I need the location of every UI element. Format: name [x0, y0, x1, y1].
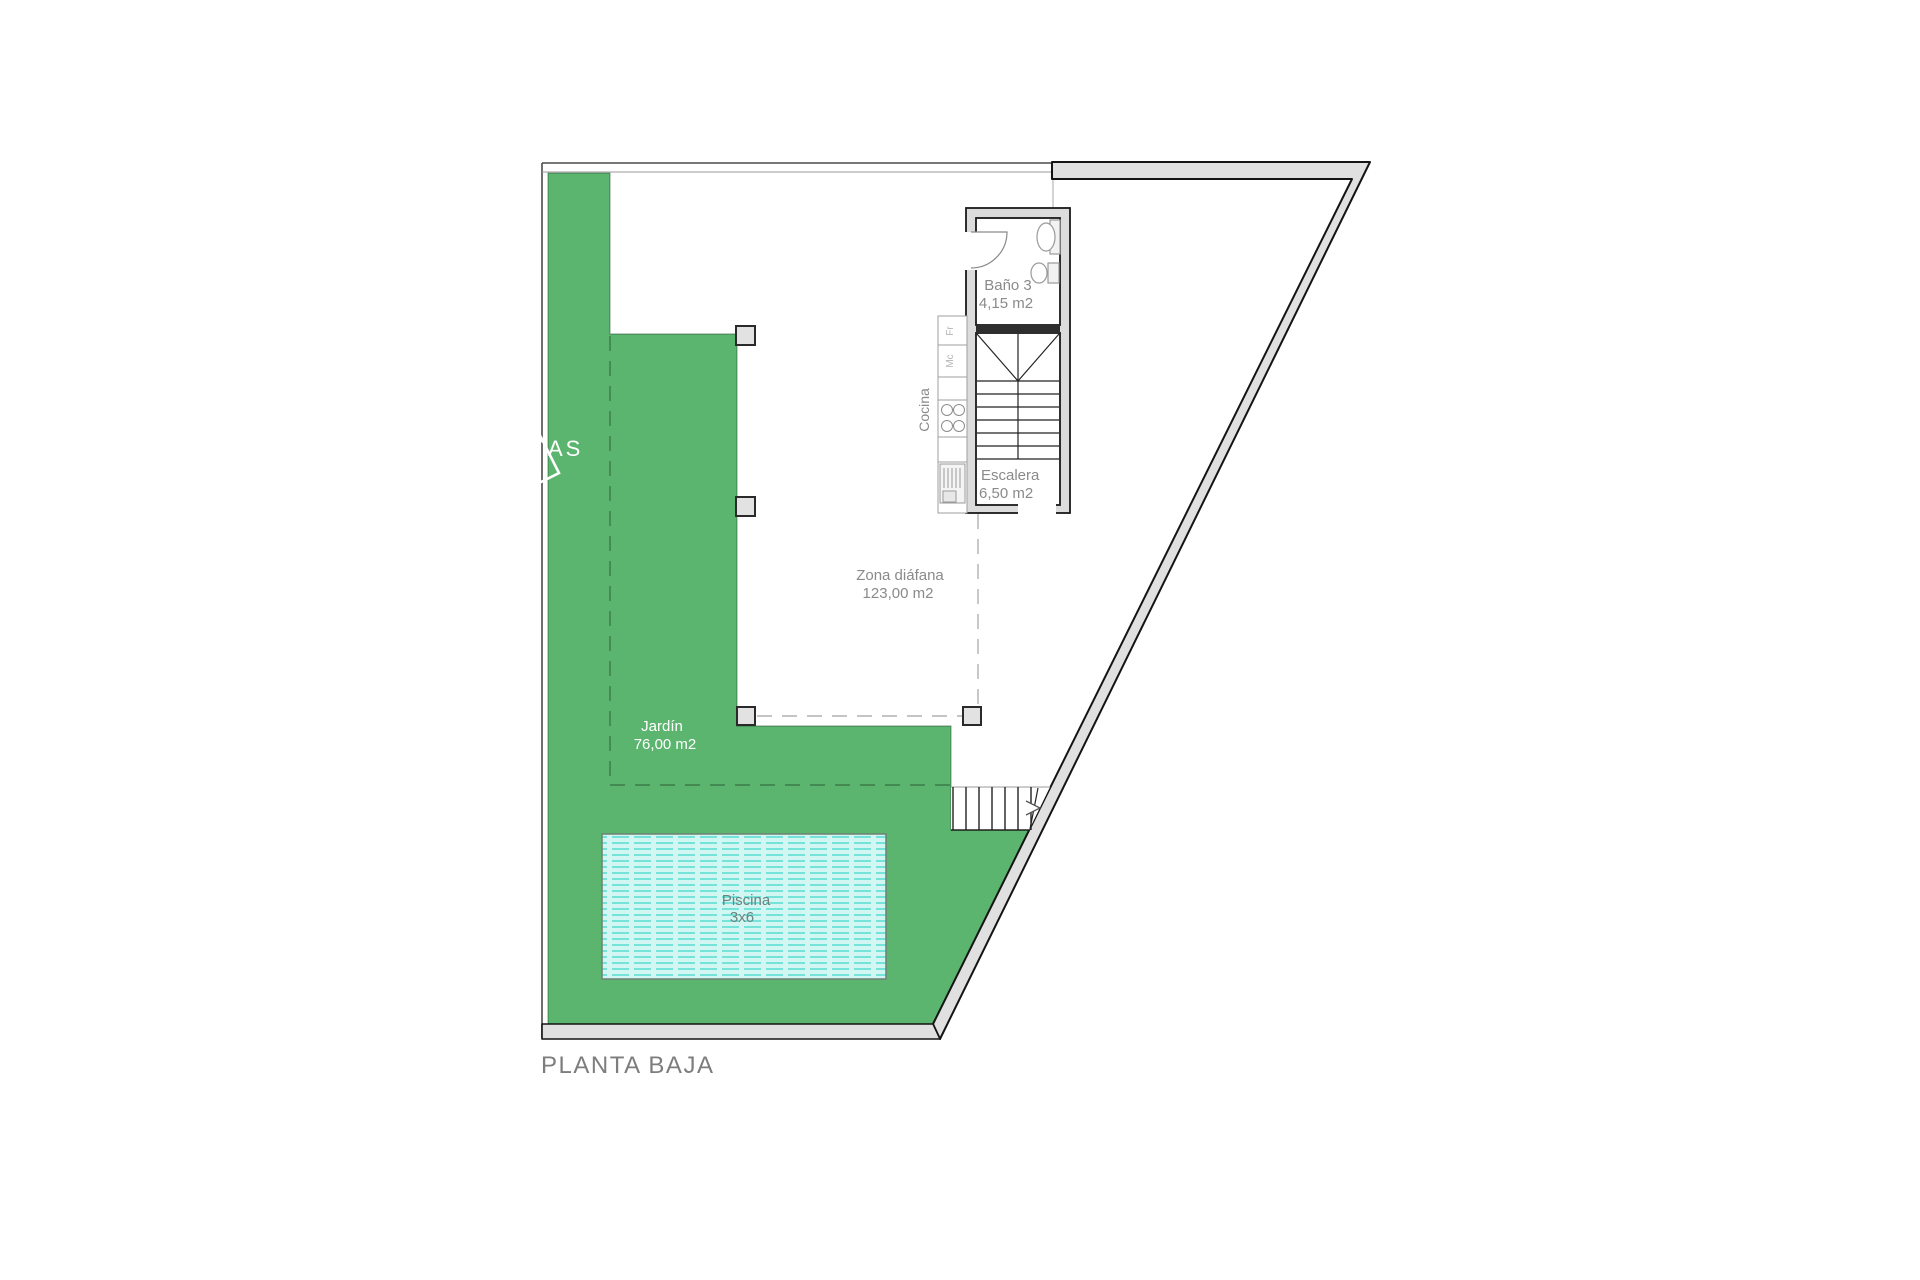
pool: Piscina 3x6 [602, 834, 886, 979]
floor-plan-drawing: Piscina 3x6 [0, 0, 1920, 1280]
plan-title: PLANTA BAJA [541, 1052, 714, 1079]
stairwell-label: Escalera [981, 467, 1040, 484]
column-1 [736, 326, 755, 345]
sink-icon [1037, 220, 1060, 254]
floor-plan-page: Piscina 3x6 [0, 0, 1920, 1280]
kitchen-counter [938, 316, 967, 513]
kitchen-sink-icon [940, 464, 965, 503]
bathroom-label: Baño 3 [984, 277, 1032, 294]
open-zone-area-label: 123,00 m2 [863, 585, 934, 602]
open-zone-label: Zona diáfana [856, 567, 944, 584]
bathroom-area-label: 4,15 m2 [979, 295, 1033, 312]
kitchen-microwave-label: Mc [945, 354, 956, 367]
bottom-thick-wall [542, 1024, 940, 1039]
garden-label: Jardín [641, 718, 683, 735]
column-4 [963, 707, 981, 725]
pool-label: Piscina [722, 892, 771, 909]
kitchen-label: Cocina [916, 388, 932, 432]
column-3 [737, 707, 755, 725]
pool-size-label: 3x6 [730, 909, 754, 926]
background [0, 0, 1920, 1280]
stairwell-area-label: 6,50 m2 [979, 485, 1033, 502]
vistas-label: VISTAS [489, 436, 584, 461]
bath-stair-divider-wall [976, 325, 1060, 333]
garden-area-label: 76,00 m2 [634, 736, 697, 753]
kitchen-fridge-label: Fr [945, 326, 956, 336]
toilet-icon [1031, 263, 1059, 283]
column-2 [736, 497, 755, 516]
